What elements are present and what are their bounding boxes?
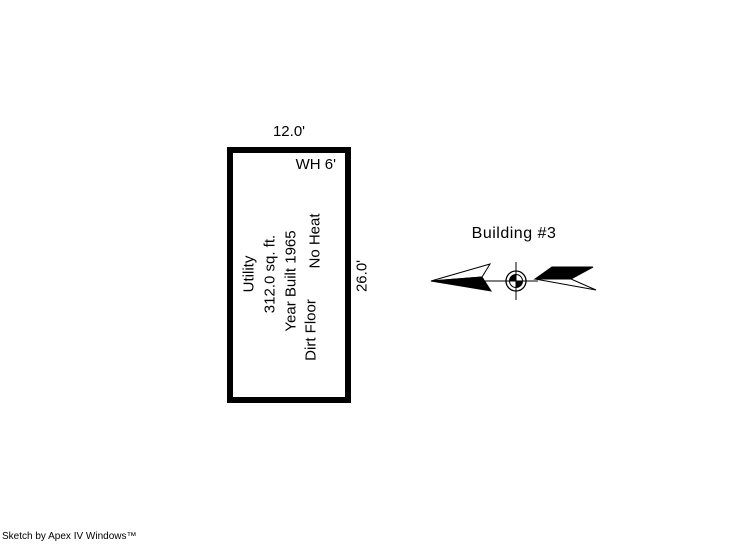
unit-year-built-label: Year Built 1965 — [283, 230, 300, 331]
unit-use-label: Utility — [241, 256, 258, 293]
sketch-canvas: 12.0' WH 6' Utility 312.0 sq. ft. Year B… — [0, 0, 746, 547]
unit-heat-label: No Heat — [307, 213, 324, 268]
dimension-height-label: 26.0' — [354, 260, 371, 292]
sketch-credit-label: Sketch by Apex IV Windows™ — [2, 531, 137, 542]
dimension-width-label: 12.0' — [227, 124, 351, 141]
unit-floor-label: Dirt Floor — [303, 299, 320, 361]
building-title: Building #3 — [472, 225, 557, 243]
unit-area-label: 312.0 sq. ft. — [262, 235, 279, 313]
north-arrow-icon — [425, 253, 605, 309]
wall-height-label: WH 6' — [233, 157, 336, 174]
